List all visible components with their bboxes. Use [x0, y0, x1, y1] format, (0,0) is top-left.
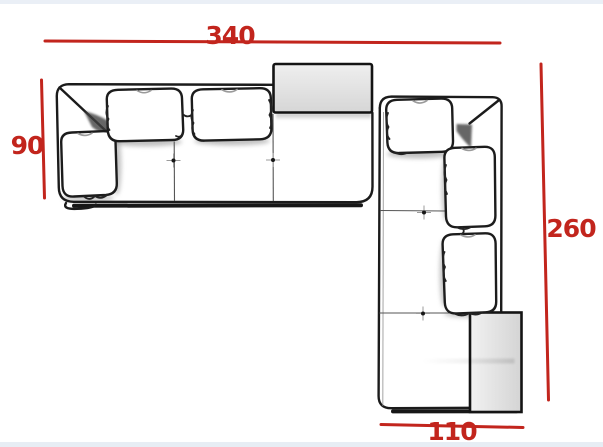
- dimension-label-top: 340: [205, 21, 255, 50]
- tufting-button: [417, 206, 431, 220]
- side-cushion-2: [443, 233, 497, 313]
- cushion-connector: [462, 227, 464, 234]
- cushion-connector: [183, 115, 192, 117]
- seat-divider: [380, 211, 446, 212]
- back-cushion-3: [386, 99, 453, 153]
- dimension-label-right: 260: [546, 214, 596, 243]
- arm-cushion-left: [61, 131, 117, 196]
- table-shadow: [276, 114, 371, 121]
- tufting-button: [167, 154, 181, 168]
- corner-seam-line: [470, 101, 499, 124]
- side-cushion-1: [444, 147, 495, 228]
- table-shadow: [421, 359, 515, 364]
- corner-shadow: [457, 124, 473, 148]
- back-cushion-2: [192, 88, 272, 140]
- dimension-label-bottom: 110: [427, 417, 477, 446]
- dimension-label-left: 90: [11, 131, 44, 160]
- side-table: [421, 313, 522, 413]
- sofa-dimension-diagram: 340 90 260 110: [0, 0, 603, 447]
- tufting-button: [416, 307, 430, 321]
- inner-edge-line: [383, 112, 384, 406]
- sofa-front-edge: [74, 205, 361, 206]
- tufting-button: [266, 153, 280, 167]
- dimension-line-top: [45, 41, 500, 43]
- sofa-floorplan-svg: 340 90 260 110: [0, 0, 603, 447]
- back-console-table: [274, 64, 373, 121]
- table-top-surface: [274, 64, 373, 113]
- back-cushion-1: [107, 89, 183, 142]
